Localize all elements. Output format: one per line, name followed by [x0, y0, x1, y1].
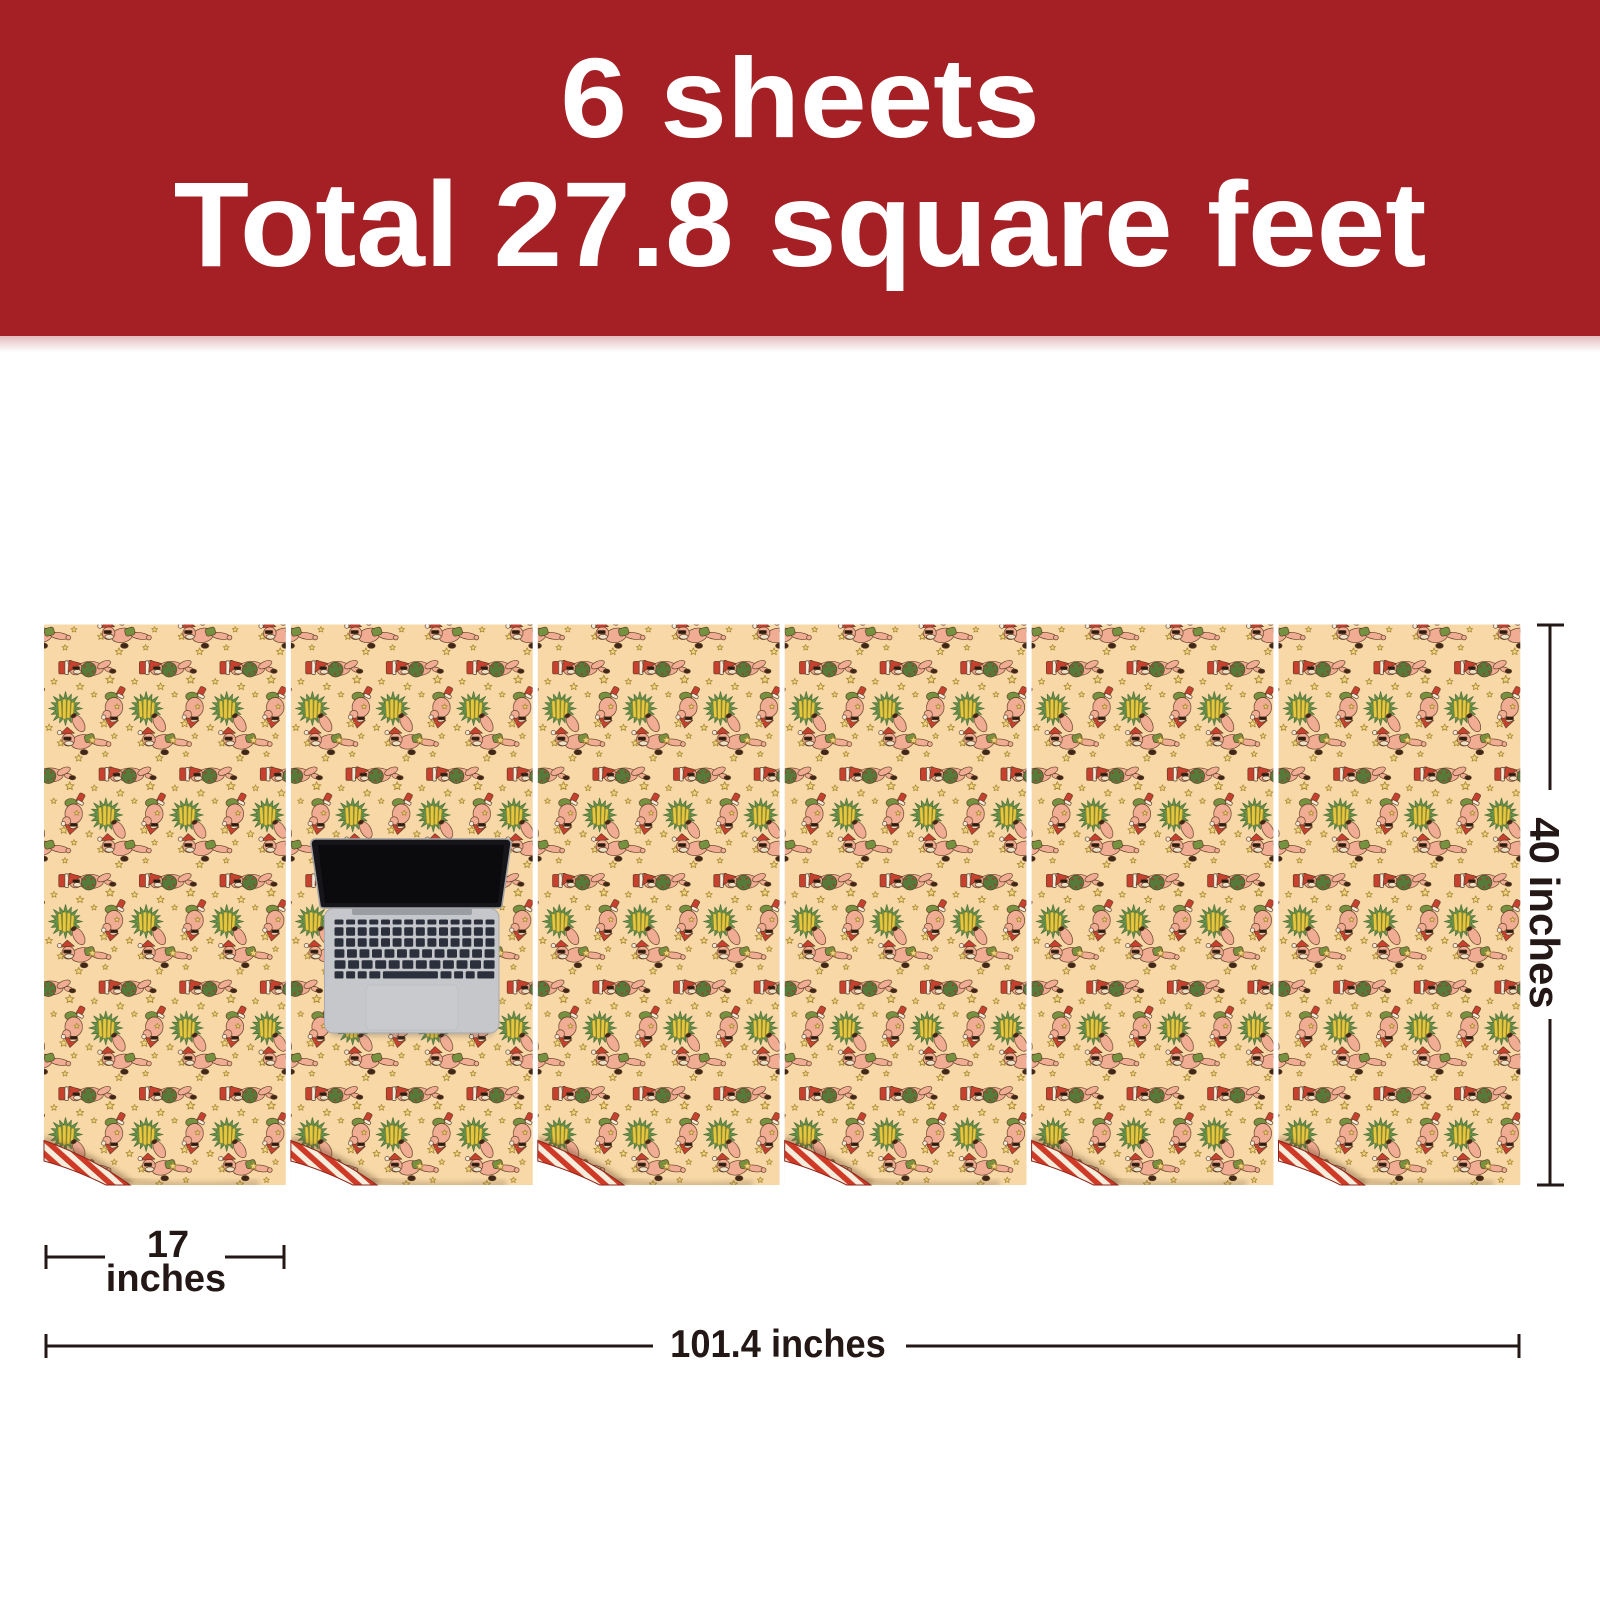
svg-text:6 sheets: 6 sheets — [560, 35, 1039, 161]
svg-text:Total 27.8 square feet: Total 27.8 square feet — [174, 156, 1427, 292]
svg-text:inches: inches — [106, 1258, 226, 1300]
svg-text:101.4 inches: 101.4 inches — [670, 1322, 886, 1365]
svg-text:40 inches: 40 inches — [1521, 817, 1568, 1008]
